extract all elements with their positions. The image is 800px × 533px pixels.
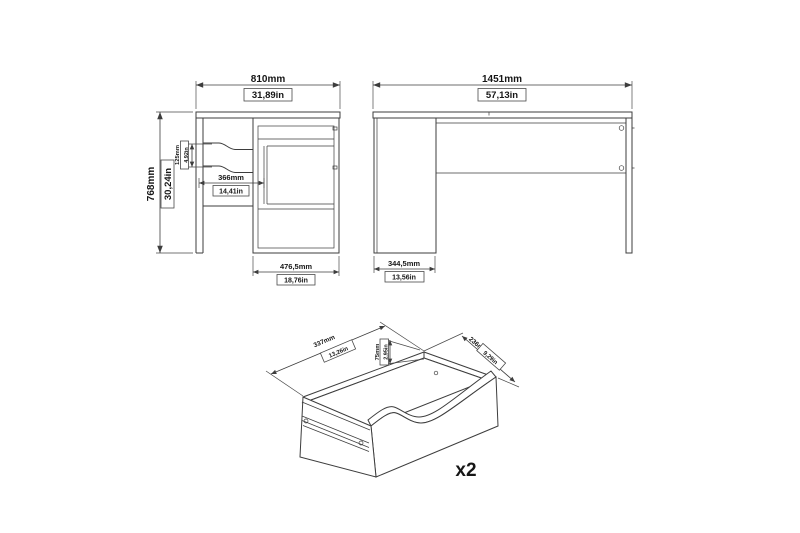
front-drawer-pitch-in-label: 4,92in [184,147,190,163]
drawer-height-in-box: 2,95in [380,339,389,365]
front-pedestal-inner [258,126,334,248]
cam-hole-top [619,126,624,131]
front-height-in-label: 30,24in [163,168,174,200]
cam-hole-bottom [619,166,624,171]
front-pedestal-width-dimension: 476,5mm 18,76in [253,256,339,285]
side-back-panel [436,123,626,173]
front-desktop [196,112,340,118]
front-height-in-box: 30,24in [161,160,174,208]
side-length-in-label: 57,13in [486,90,518,101]
front-pedestal-shelves [258,139,334,209]
drawer-quantity-label: x2 [455,460,476,481]
side-length-mm-label: 1451mm [482,74,522,85]
front-hinge-top [333,127,337,130]
front-drawer-pitch-in-box: 4,92in [181,141,190,169]
front-drawer-width-in-label: 14,41in [219,189,243,196]
drawer-height-in-label: 2,95in [383,344,389,360]
side-right-leg [626,118,632,253]
front-width-mm-label: 810mm [251,74,286,85]
front-pedestal [253,118,339,253]
front-height-dimension: 768mm 30,24in [146,112,193,253]
side-depth-mm-label: 344,5mm [388,259,420,268]
side-pedestal [374,118,436,253]
side-depth-in-label: 13,56in [392,275,416,282]
side-length-dimension: 1451mm 57,13in [373,74,632,109]
desk-dimension-drawing: 810mm 31,89in 768mm 30,24in 125mm 4,92in [0,0,800,533]
drawer-width-mm-label: 337mm [313,334,337,349]
front-height-mm-label: 768mm [146,167,157,202]
front-view: 810mm 31,89in 768mm 30,24in 125mm 4,92in [146,74,340,285]
drawer-depth-in-box: 9,29in [477,343,506,370]
front-pedestal-outer [253,118,339,253]
front-width-dimension: 810mm 31,89in [196,74,340,109]
front-pedestal-width-mm-label: 476,5mm [280,262,312,271]
front-drawer-pitch-dimension: 125mm 4,92in [175,141,212,169]
drawer-detail-view: 337mm 13,26in 75mm 2,95in 236mm 9,29in [266,322,519,481]
side-view: 1451mm 57,13in 344,5mm 13,56in [373,74,635,282]
front-drawer-width-dimension: 366mm 14,41in [199,173,264,196]
side-depth-dimension: 344,5mm 13,56in [374,256,435,282]
technical-drawing-page: 810mm 31,89in 768mm 30,24in 125mm 4,92in [0,0,800,533]
front-width-in-label: 31,89in [252,90,284,101]
front-pedestal-width-in-label: 18,76in [284,278,308,285]
front-left-leg [196,118,203,253]
front-hinge-bottom [333,166,337,169]
side-desktop [373,112,632,118]
front-drawer-width-mm-label: 366mm [218,173,244,182]
